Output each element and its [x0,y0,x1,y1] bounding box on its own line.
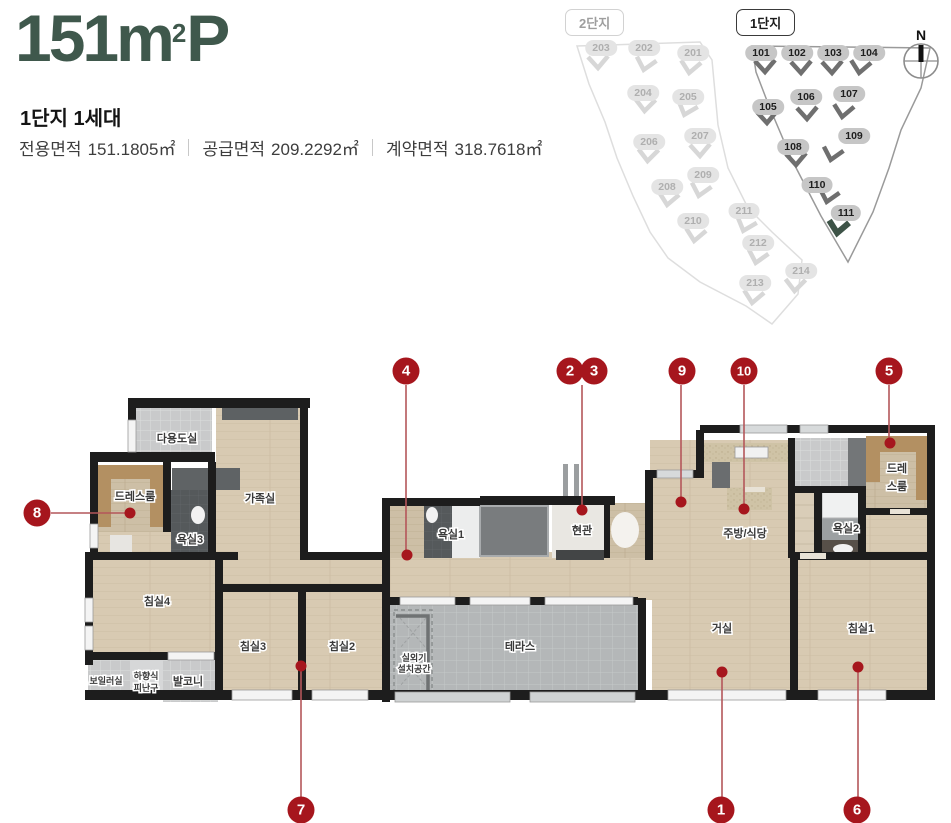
label-balcony: 발코니 [173,674,203,688]
label-boiler: 보일러실 [89,675,122,686]
label-bed2: 침실2 [329,639,355,653]
badge-106: 106 [790,89,822,105]
divider [188,139,189,156]
badge-101: 101 [745,45,777,61]
divider [372,139,373,156]
marker-10: 10 [731,358,758,385]
area-exclusive: 전용면적151.1805㎡ [19,135,175,160]
badge-103: 103 [817,45,849,61]
label-dress-right-2: 스룸 [887,480,907,493]
badge-212: 212 [742,235,774,251]
badge-211: 211 [729,203,760,219]
badge-209: 209 [687,167,719,183]
label-terrace: 테라스 [505,639,535,653]
badge-205: 205 [672,89,704,105]
area-supply: 공급면적209.2292㎡ [202,135,358,160]
badge-105: 105 [752,99,784,115]
page-title: 151m2P [15,2,227,75]
badge-214: 214 [785,263,817,279]
label-utility: 다용도실 [157,431,197,445]
unit-subtitle: 1단지 1세대 [20,102,121,131]
marker-8: 8 [24,500,51,527]
label-family: 가족실 [245,491,275,505]
badge-109: 109 [838,128,870,144]
badge-213: 213 [739,275,771,291]
badge-204: 204 [627,85,659,101]
label-escape-1: 하향식 [134,670,159,681]
tab-complex1[interactable]: 1단지 [736,9,795,36]
badge-203: 203 [585,40,617,56]
badge-110: 110 [802,177,833,193]
marker-1: 1 [708,797,735,823]
marker-6: 6 [844,797,871,823]
badge-207: 207 [684,128,716,144]
label-outdoor-1: 실외기 [402,652,427,663]
title-sup: 2 [172,18,186,48]
label-bed4: 침실4 [144,594,171,608]
badge-102: 102 [781,45,813,61]
badge-210: 210 [677,213,709,229]
tab-complex2[interactable]: 2단지 [565,9,624,36]
badge-111: 111 [831,205,861,221]
badge-201: 201 [677,45,709,61]
label-dress-left: 드레스룸 [115,489,155,503]
floor-plan: 다용도실 드레스룸 가족실 욕실3 침실4 침실3 침실2 보일러실 하향식 피… [20,360,951,823]
area-contract: 계약면적318.7618㎡ [386,135,542,160]
compass-north-label: N [916,27,926,43]
label-bed1: 침실1 [848,621,874,635]
label-dress-right-1: 드레 [887,461,907,475]
label-kitchen: 주방/식당 [723,526,767,540]
marker-4: 4 [393,358,420,385]
label-bed3: 침실3 [240,639,266,653]
label-entrance: 현관 [572,523,592,537]
label-escape-2: 피난구 [134,682,159,693]
badge-208: 208 [651,179,683,195]
badge-107: 107 [833,86,865,102]
label-bath3: 욕실3 [177,532,203,546]
badge-206: 206 [633,134,665,150]
marker-7: 7 [288,797,315,823]
title-base: 151m [15,1,172,75]
badge-108: 108 [777,139,809,155]
label-bath2: 욕실2 [833,521,859,535]
label-bath1: 욕실1 [438,527,464,541]
badge-104: 104 [853,45,885,61]
marker-5: 5 [876,358,903,385]
marker-2: 2 [557,358,584,385]
label-living: 거실 [712,621,732,635]
area-info: 전용면적151.1805㎡ 공급면적209.2292㎡ 계약면적318.7618… [19,135,542,160]
marker-9: 9 [669,358,696,385]
label-outdoor-2: 설치공간 [397,663,431,674]
page: 151m2P 1단지 1세대 전용면적151.1805㎡ 공급면적209.229… [0,0,951,823]
badge-202: 202 [628,40,660,56]
title-suffix: P [186,1,227,75]
marker-3: 3 [581,358,608,385]
